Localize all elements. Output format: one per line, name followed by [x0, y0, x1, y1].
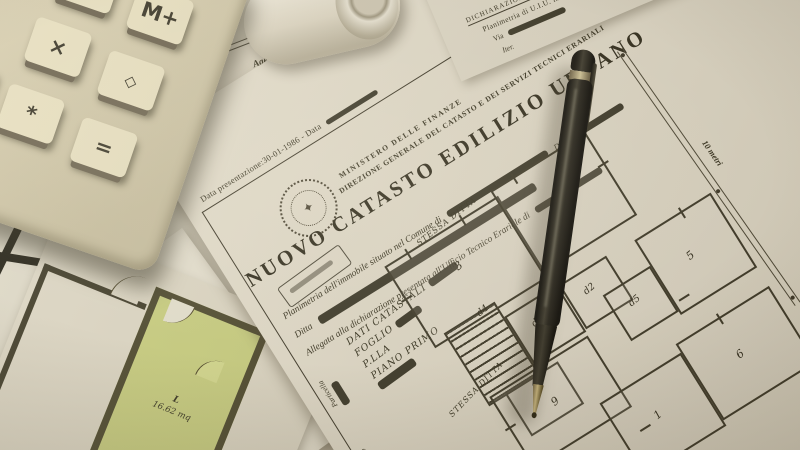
calc-key-divide: ÷ [53, 0, 123, 15]
door-arc [163, 298, 195, 330]
calc-key-equals: = [69, 116, 139, 178]
pen-tip-cone [529, 384, 544, 415]
calc-key-mplus: M+ [125, 0, 195, 46]
calc-key-multiply: × [23, 16, 93, 78]
calc-key-asterisk: * [0, 83, 66, 145]
pen-taper [527, 323, 557, 387]
photo-scene: Agenzia del Territorio CATASTO FABBRICAT… [0, 0, 800, 450]
dimension-dot [715, 188, 721, 194]
door-arc [195, 354, 225, 383]
ditta-label: Ditta [293, 322, 315, 341]
pen-body [533, 78, 594, 329]
dichiarazione-iter: Iter. [501, 42, 515, 55]
pen-ball-point [531, 412, 537, 419]
calc-key-diamond: ◇ [96, 50, 166, 112]
dimension-dot [790, 295, 796, 301]
